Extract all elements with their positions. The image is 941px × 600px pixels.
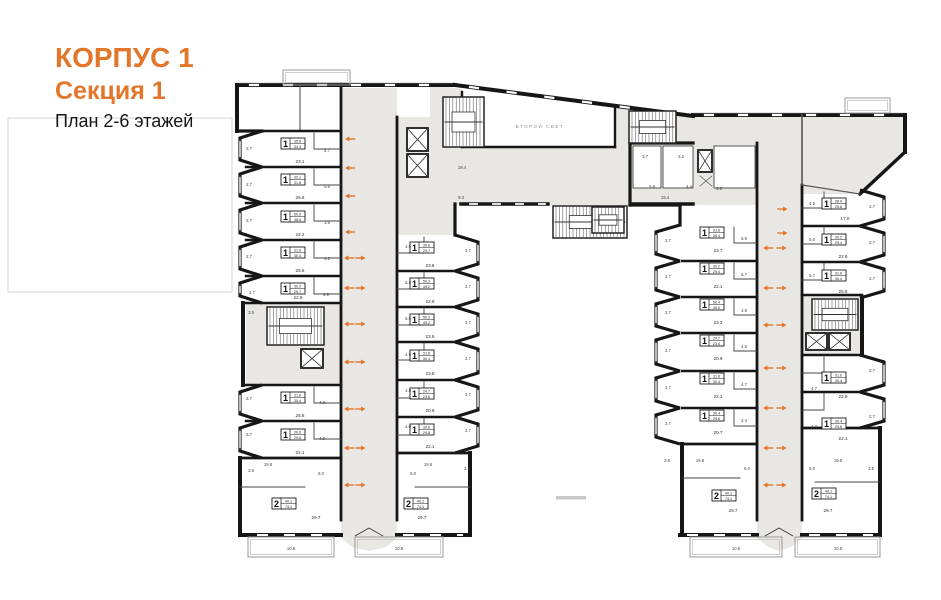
elevator-shaft	[829, 333, 850, 350]
svg-text:5.6: 5.6	[716, 186, 722, 191]
svg-text:24.7: 24.7	[713, 337, 720, 341]
adjacent-building-outline	[8, 118, 232, 292]
svg-text:10.6: 10.6	[834, 546, 843, 551]
elevator-shaft	[806, 333, 827, 350]
svg-text:5.7: 5.7	[809, 273, 815, 278]
svg-text:31.6: 31.6	[835, 272, 842, 276]
svg-text:25.8: 25.8	[296, 413, 305, 418]
svg-text:29.7: 29.7	[423, 249, 430, 253]
svg-text:9.3: 9.3	[458, 195, 464, 200]
svg-text:22.9: 22.9	[839, 254, 848, 259]
svg-text:2.7: 2.7	[246, 396, 252, 401]
svg-text:30.4: 30.4	[835, 277, 842, 281]
elevator-shaft	[407, 154, 428, 177]
svg-text:30.6: 30.6	[294, 431, 301, 435]
svg-text:2.7: 2.7	[869, 240, 875, 245]
svg-text:23.1: 23.1	[296, 159, 305, 164]
svg-text:23.7: 23.7	[714, 248, 723, 253]
svg-text:2.7: 2.7	[465, 356, 471, 361]
svg-text:23.6: 23.6	[713, 342, 720, 346]
svg-text:4.4: 4.4	[811, 424, 817, 429]
svg-text:1: 1	[283, 139, 288, 149]
svg-text:4.0: 4.0	[319, 436, 325, 441]
svg-text:31.6: 31.6	[713, 375, 720, 379]
svg-text:19.4: 19.4	[661, 195, 670, 200]
apartment-label: 124.723.620.9	[410, 388, 435, 413]
svg-text:2.7: 2.7	[246, 432, 252, 437]
svg-text:20.9: 20.9	[714, 356, 723, 361]
svg-text:5.7: 5.7	[741, 272, 747, 277]
apartment-label: 131.630.423.7	[700, 227, 724, 253]
svg-text:2.7: 2.7	[246, 218, 252, 223]
apartment-label: 150.048.622.2	[281, 211, 305, 237]
svg-text:50.3: 50.3	[423, 316, 430, 320]
svg-text:1: 1	[702, 411, 707, 421]
svg-text:22.9: 22.9	[839, 394, 848, 399]
svg-text:23.6: 23.6	[423, 395, 430, 399]
svg-text:23.3: 23.3	[714, 320, 723, 325]
svg-text:1: 1	[702, 300, 707, 310]
right-wing-stair	[812, 299, 858, 330]
svg-text:25.8: 25.8	[835, 205, 842, 209]
section-title: Секция 1	[55, 76, 194, 107]
svg-text:49.0: 49.0	[713, 306, 720, 310]
svg-text:1: 1	[412, 425, 417, 435]
svg-text:4.5: 4.5	[405, 352, 411, 357]
svg-text:50.3: 50.3	[423, 280, 430, 284]
svg-text:22.9: 22.9	[426, 299, 435, 304]
apartment-label: 130.429.622.1	[822, 418, 848, 441]
apartment-label: 130.629.723.8	[410, 242, 435, 268]
svg-text:10.6: 10.6	[287, 546, 296, 551]
svg-text:35.6: 35.6	[294, 140, 301, 144]
svg-text:2.7: 2.7	[465, 284, 471, 289]
svg-text:48.6: 48.6	[294, 218, 301, 222]
svg-text:2.7: 2.7	[869, 204, 875, 209]
apartment-label: 130.229.722.9	[281, 283, 305, 300]
svg-text:74.1: 74.1	[825, 495, 832, 499]
svg-text:30.4: 30.4	[294, 399, 301, 403]
svg-text:30.6: 30.6	[423, 426, 430, 430]
svg-text:34.3: 34.3	[294, 145, 301, 149]
svg-text:4.5: 4.5	[741, 344, 747, 349]
apartment-label: 240.174.129.7	[272, 498, 321, 520]
svg-text:3.5: 3.5	[664, 458, 670, 463]
svg-text:4.2: 4.2	[324, 256, 330, 261]
svg-text:3.9: 3.9	[324, 220, 330, 225]
apartment-label: 130.429.620.7	[700, 410, 724, 435]
svg-text:1: 1	[412, 389, 417, 399]
apartment-label: 130.229.422.9	[822, 234, 848, 259]
svg-text:2.2: 2.2	[678, 154, 684, 159]
svg-text:4.0: 4.0	[405, 424, 411, 429]
svg-text:3.5: 3.5	[868, 466, 874, 471]
apartment-label: 150.349.223.9	[410, 314, 435, 339]
svg-text:25.8: 25.8	[839, 289, 848, 294]
svg-text:5.6: 5.6	[809, 237, 815, 242]
svg-text:30.4: 30.4	[423, 357, 430, 361]
svg-text:40.1: 40.1	[725, 492, 732, 496]
svg-text:4.5: 4.5	[809, 201, 815, 206]
svg-text:4.5: 4.5	[405, 244, 411, 249]
elevator-shaft	[698, 150, 712, 172]
svg-text:5.6: 5.6	[405, 316, 411, 321]
apartment-label: 131.630.422.9	[822, 372, 848, 399]
svg-text:2.7: 2.7	[465, 392, 471, 397]
svg-text:74.1: 74.1	[417, 505, 424, 509]
plan-caption: План 2-6 этажей	[55, 111, 194, 132]
svg-text:31.6: 31.6	[294, 249, 301, 253]
svg-text:40.1: 40.1	[285, 500, 292, 504]
svg-text:1: 1	[702, 264, 707, 274]
apartment-label: 131.630.425.8	[281, 392, 305, 418]
svg-text:1: 1	[283, 248, 288, 258]
svg-text:5.9: 5.9	[649, 184, 655, 189]
svg-text:6.0: 6.0	[318, 471, 324, 476]
svg-text:2: 2	[274, 499, 279, 509]
svg-text:22.1: 22.1	[839, 436, 848, 441]
svg-text:30.4: 30.4	[835, 379, 842, 383]
courtyard-marker	[556, 496, 586, 500]
apartment-label: 131.630.422.1	[700, 373, 724, 399]
apartment-label: 130.629.822.1	[410, 424, 435, 449]
svg-text:30.2: 30.2	[835, 236, 842, 240]
svg-text:31.6: 31.6	[835, 374, 842, 378]
svg-text:50.4: 50.4	[713, 301, 720, 305]
svg-text:22.9: 22.9	[294, 295, 303, 300]
svg-text:6.0: 6.0	[410, 471, 416, 476]
svg-text:2: 2	[814, 489, 819, 499]
apartment-label: 130.629.822.1	[281, 429, 305, 455]
svg-text:29.4: 29.4	[713, 270, 720, 274]
svg-text:31.6: 31.6	[294, 394, 301, 398]
svg-text:31.8: 31.8	[294, 181, 301, 185]
svg-text:1: 1	[283, 284, 288, 294]
svg-text:29.7: 29.7	[418, 515, 427, 520]
svg-text:29.7: 29.7	[294, 290, 301, 294]
svg-text:31.6: 31.6	[423, 352, 430, 356]
svg-text:1: 1	[283, 430, 288, 440]
svg-text:1: 1	[824, 373, 829, 383]
svg-text:2.7: 2.7	[249, 290, 255, 295]
svg-text:22.1: 22.1	[714, 284, 723, 289]
svg-text:2.7: 2.7	[869, 368, 875, 373]
svg-text:29.6: 29.6	[835, 425, 842, 429]
svg-text:20.9: 20.9	[426, 408, 435, 413]
svg-text:23.9: 23.9	[426, 334, 435, 339]
balcony	[283, 70, 350, 85]
svg-text:2.7: 2.7	[869, 414, 875, 419]
apartment-label: 132.131.825.6	[281, 174, 305, 200]
svg-text:30.6: 30.6	[423, 244, 430, 248]
svg-text:2: 2	[406, 499, 411, 509]
svg-text:26.9: 26.9	[835, 200, 842, 204]
svg-text:1: 1	[824, 419, 829, 429]
svg-text:4.9: 4.9	[319, 400, 325, 405]
svg-text:32.1: 32.1	[294, 176, 301, 180]
svg-text:29.8: 29.8	[294, 436, 301, 440]
svg-text:1: 1	[824, 271, 829, 281]
svg-text:2.7: 2.7	[665, 348, 671, 353]
title-block: КОРПУС 1 Секция 1 План 2-6 этажей	[55, 40, 194, 132]
common-areas	[246, 85, 905, 551]
svg-text:49.2: 49.2	[423, 321, 430, 325]
svg-text:29.4: 29.4	[835, 241, 842, 245]
apartment-label: 240.174.129.7	[712, 490, 738, 513]
svg-text:1: 1	[824, 199, 829, 209]
svg-text:29.6: 29.6	[713, 417, 720, 421]
apartment-label: 150.349.222.9	[410, 278, 435, 304]
svg-text:23.8: 23.8	[426, 263, 435, 268]
building-title: КОРПУС 1	[55, 40, 194, 76]
apartment-label: 131.630.425.8	[822, 270, 848, 294]
connector-left-stair	[443, 97, 484, 147]
svg-text:1: 1	[824, 235, 829, 245]
svg-text:2.7: 2.7	[665, 385, 671, 390]
svg-text:2.7: 2.7	[665, 310, 671, 315]
svg-text:4.8: 4.8	[405, 388, 411, 393]
svg-text:74.1: 74.1	[285, 505, 292, 509]
apartment-label: 131.630.425.6	[281, 247, 305, 273]
svg-text:2.7: 2.7	[465, 320, 471, 325]
svg-text:29.7: 29.7	[312, 515, 321, 520]
svg-text:1: 1	[702, 374, 707, 384]
svg-text:5.8: 5.8	[405, 280, 411, 285]
apartment-label: 124.723.620.9	[700, 335, 724, 361]
elevator-shaft	[407, 128, 428, 151]
elevator-shaft	[301, 349, 323, 368]
apartment-label: 130.229.422.1	[700, 263, 724, 289]
svg-text:49.2: 49.2	[423, 285, 430, 289]
svg-text:1: 1	[283, 393, 288, 403]
svg-text:4.4: 4.4	[741, 418, 747, 423]
svg-text:19.8: 19.8	[834, 458, 843, 463]
svg-text:19.8: 19.8	[696, 458, 705, 463]
svg-text:30.4: 30.4	[713, 380, 720, 384]
svg-text:1: 1	[412, 279, 417, 289]
svg-text:24.7: 24.7	[423, 390, 430, 394]
svg-text:1: 1	[412, 315, 417, 325]
svg-text:6.0: 6.0	[744, 466, 750, 471]
svg-text:5.6: 5.6	[324, 184, 330, 189]
svg-text:4.8: 4.8	[741, 308, 747, 313]
svg-text:30.4: 30.4	[294, 254, 301, 258]
svg-text:22.1: 22.1	[296, 450, 305, 455]
svg-text:3.5: 3.5	[248, 310, 254, 315]
svg-text:2.7: 2.7	[665, 421, 671, 426]
left-wing-stair	[267, 307, 324, 345]
svg-text:5.6: 5.6	[741, 236, 747, 241]
apartment-label: 240.174.129.7	[812, 488, 836, 513]
floor-plan-page: КОРПУС 1 Секция 1 План 2-6 этажей ВТОРОЙ…	[0, 0, 941, 600]
svg-text:19.8: 19.8	[424, 462, 433, 467]
svg-text:3.5: 3.5	[248, 468, 254, 473]
svg-text:29.7: 29.7	[729, 508, 738, 513]
entry-stair	[592, 207, 624, 233]
svg-text:29.8: 29.8	[423, 431, 430, 435]
svg-text:30.4: 30.4	[835, 420, 842, 424]
apartment-label: 135.634.323.1	[281, 138, 305, 164]
svg-text:2.7: 2.7	[665, 238, 671, 243]
svg-text:22.1: 22.1	[714, 394, 723, 399]
svg-text:30.4: 30.4	[713, 234, 720, 238]
svg-text:74.1: 74.1	[725, 497, 732, 501]
svg-text:3.5: 3.5	[464, 466, 470, 471]
svg-text:22.2: 22.2	[296, 232, 305, 237]
svg-text:2.7: 2.7	[665, 274, 671, 279]
svg-text:4.7: 4.7	[811, 386, 817, 391]
svg-text:4.7: 4.7	[324, 148, 330, 153]
svg-text:25.6: 25.6	[296, 195, 305, 200]
apartment-label: 240.174.129.7	[404, 498, 428, 520]
svg-text:29.7: 29.7	[824, 508, 833, 513]
svg-text:17.0: 17.0	[841, 216, 850, 221]
svg-text:3.7: 3.7	[642, 154, 648, 159]
connector-right-stair	[629, 111, 676, 143]
svg-text:30.2: 30.2	[713, 265, 720, 269]
svg-text:1: 1	[412, 243, 417, 253]
svg-text:30.2: 30.2	[294, 285, 301, 289]
svg-text:4.7: 4.7	[741, 382, 747, 387]
svg-text:1: 1	[283, 212, 288, 222]
svg-text:31.6: 31.6	[713, 229, 720, 233]
svg-text:2: 2	[714, 491, 719, 501]
svg-text:30.4: 30.4	[713, 412, 720, 416]
svg-text:2.7: 2.7	[465, 248, 471, 253]
svg-text:2.7: 2.7	[869, 276, 875, 281]
svg-text:ВТОРОЙ СВЕТ: ВТОРОЙ СВЕТ	[516, 124, 564, 129]
svg-text:19.4: 19.4	[458, 165, 467, 170]
svg-text:6.0: 6.0	[809, 466, 815, 471]
apartment-label: 126.925.817.0	[822, 198, 850, 221]
svg-text:25.6: 25.6	[296, 268, 305, 273]
svg-text:23.8: 23.8	[426, 371, 435, 376]
svg-text:22.1: 22.1	[426, 444, 435, 449]
svg-text:40.1: 40.1	[825, 490, 832, 494]
svg-text:1: 1	[412, 351, 417, 361]
svg-text:2.7: 2.7	[246, 146, 252, 151]
svg-text:3.9: 3.9	[323, 292, 329, 297]
apartment-label: 150.449.023.3	[700, 299, 724, 325]
svg-text:19.8: 19.8	[264, 462, 273, 467]
svg-text:2.7: 2.7	[246, 254, 252, 259]
svg-text:1: 1	[702, 228, 707, 238]
svg-text:10.6: 10.6	[732, 546, 741, 551]
svg-text:2.7: 2.7	[246, 182, 252, 187]
svg-text:1: 1	[702, 336, 707, 346]
apartment-label: 131.630.423.8	[410, 350, 435, 376]
svg-text:4.4: 4.4	[686, 184, 692, 189]
svg-text:10.6: 10.6	[395, 546, 404, 551]
svg-text:40.1: 40.1	[417, 500, 424, 504]
svg-text:1: 1	[283, 175, 288, 185]
svg-text:2.7: 2.7	[465, 428, 471, 433]
balcony	[845, 98, 890, 113]
svg-text:20.7: 20.7	[714, 430, 723, 435]
svg-text:50.0: 50.0	[294, 213, 301, 217]
